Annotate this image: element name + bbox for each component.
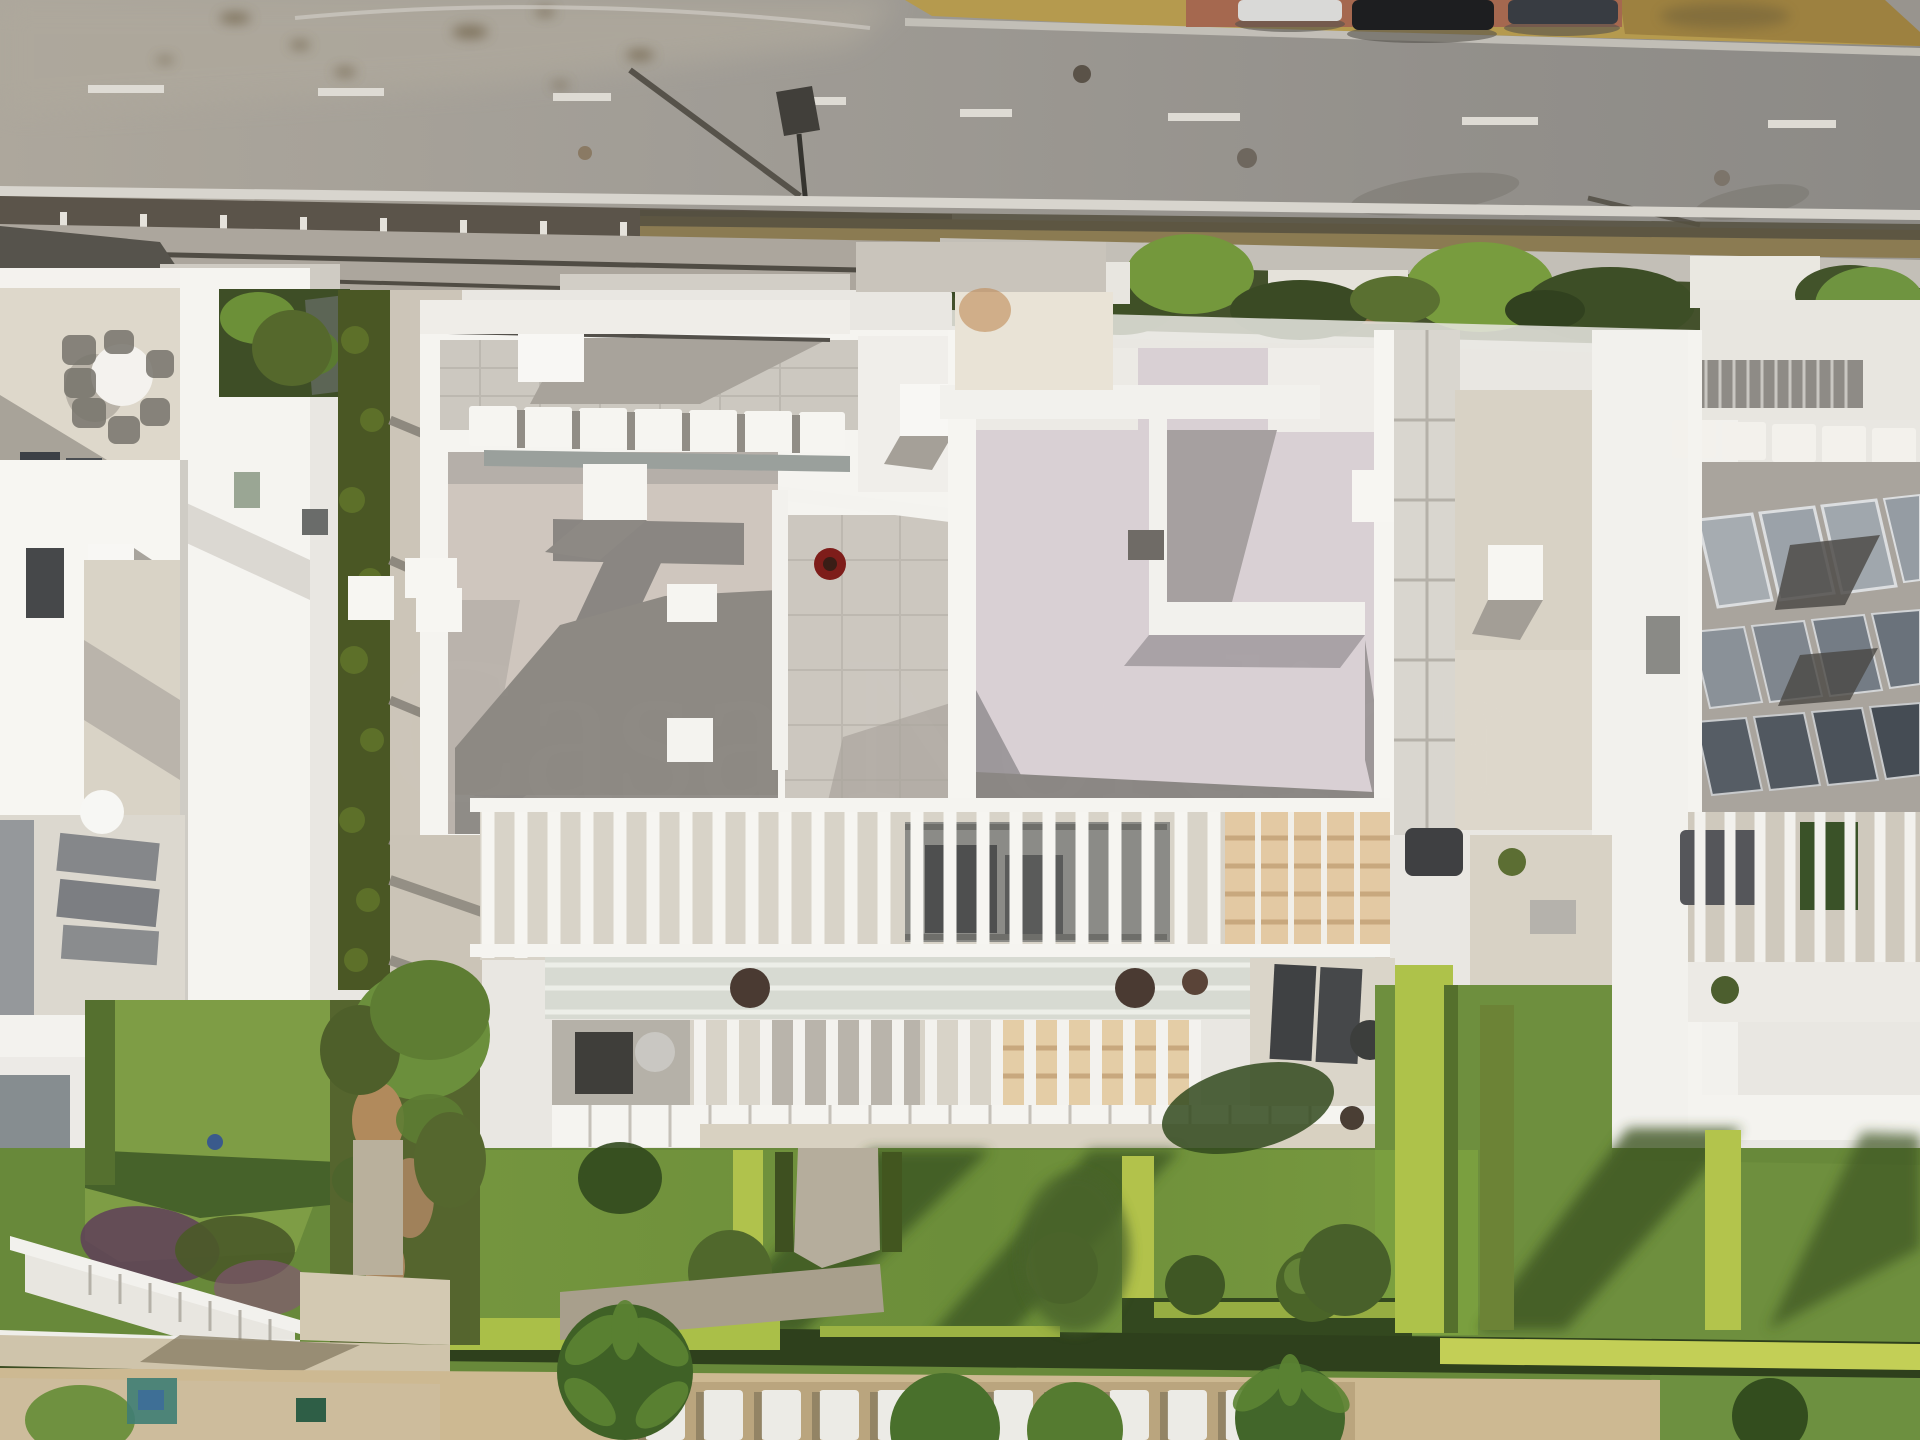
- svg-text:Casa Nordica: Casa Nordica: [381, 614, 1518, 846]
